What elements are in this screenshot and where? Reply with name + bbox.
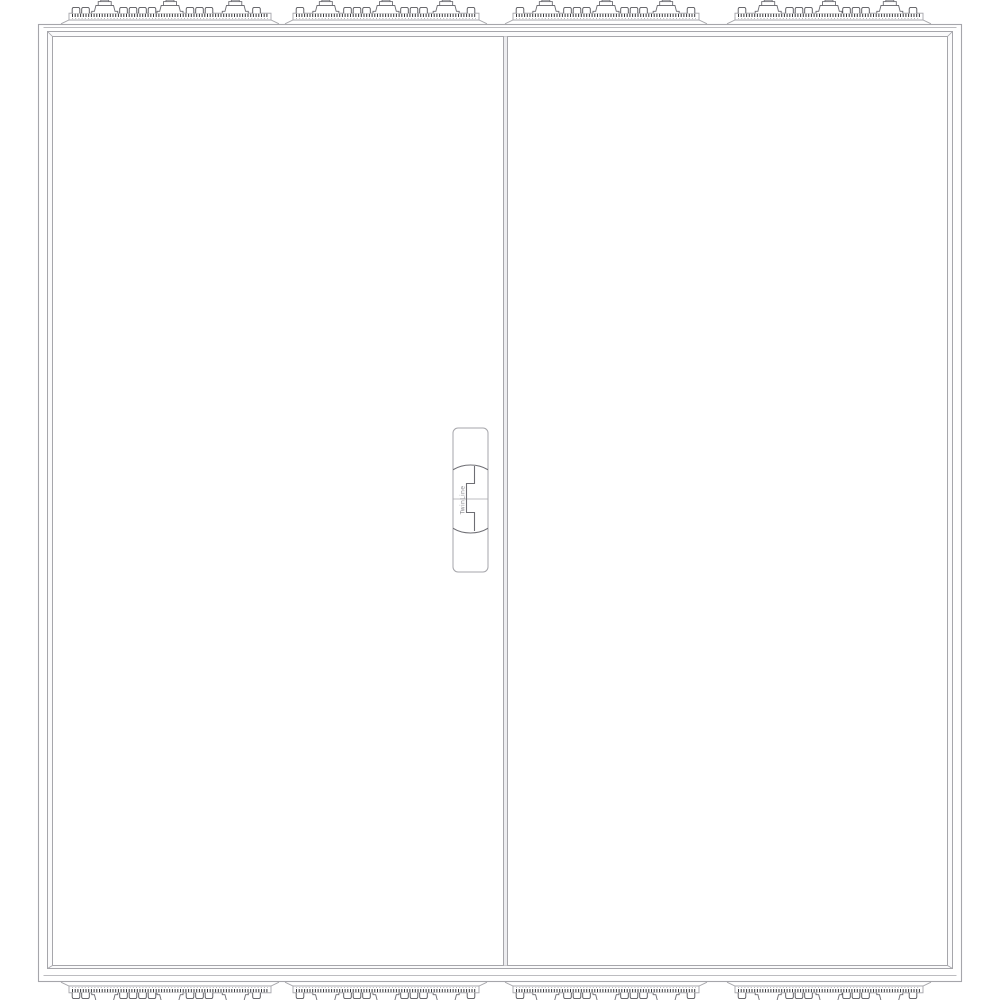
small-cable-knob <box>630 993 638 999</box>
flange-base-skirt <box>61 982 279 986</box>
small-cable-knob <box>129 993 137 999</box>
large-cable-grommet <box>313 993 339 1000</box>
small-cable-knob <box>516 7 524 13</box>
small-cable-knob <box>120 993 128 999</box>
flange-base-skirt <box>285 20 487 24</box>
center-seam <box>504 37 508 966</box>
small-cable-knob <box>564 993 572 999</box>
large-cable-grommet <box>373 0 399 13</box>
large-cable-grommet <box>653 993 679 1000</box>
large-cable-grommet <box>157 993 183 1000</box>
small-cable-knob <box>516 993 524 999</box>
large-cable-grommet <box>755 993 781 1000</box>
large-cable-grommet <box>593 0 619 13</box>
large-cable-grommet <box>533 993 559 1000</box>
flange-strip-bottom-4 <box>727 982 931 1000</box>
large-cable-grommet <box>653 0 679 13</box>
small-cable-knob <box>148 7 156 13</box>
large-cable-grommet <box>816 0 842 13</box>
large-cable-grommet <box>433 993 459 1000</box>
flange-base-skirt <box>285 982 487 986</box>
small-cable-knob <box>344 7 352 13</box>
small-cable-knob <box>573 7 581 13</box>
small-cable-knob <box>296 7 304 13</box>
small-cable-knob <box>640 993 648 999</box>
large-cable-grommet <box>313 0 339 13</box>
flange-strip-top-1 <box>61 0 279 24</box>
flange-strips-top <box>61 0 931 24</box>
small-cable-knob <box>196 7 204 13</box>
small-cable-knob <box>120 7 128 13</box>
small-cable-knob <box>852 993 860 999</box>
small-cable-knob <box>630 7 638 13</box>
small-cable-knob <box>843 993 851 999</box>
door-left <box>53 37 504 966</box>
large-cable-grommet <box>222 0 248 13</box>
small-cable-knob <box>786 993 794 999</box>
small-cable-knob <box>862 993 870 999</box>
handle-pill <box>453 428 488 572</box>
flange-strip-top-4 <box>727 0 931 24</box>
small-cable-knob <box>583 7 591 13</box>
small-cable-knob <box>205 993 213 999</box>
small-cable-knob <box>205 7 213 13</box>
small-cable-knob <box>296 993 304 999</box>
small-cable-knob <box>129 7 137 13</box>
small-cable-knob <box>139 993 147 999</box>
small-cable-knob <box>353 993 361 999</box>
small-cable-knob <box>363 993 371 999</box>
flange-base-skirt <box>505 982 707 986</box>
small-cable-knob <box>738 7 746 13</box>
large-cable-grommet <box>877 0 903 13</box>
small-cable-knob <box>687 993 695 999</box>
small-cable-knob <box>843 7 851 13</box>
flange-base-skirt <box>61 20 279 24</box>
enclosure-technical-drawing: TwinLine <box>0 0 1000 1000</box>
small-cable-knob <box>805 993 813 999</box>
flange-strip-bottom-1 <box>61 982 279 1000</box>
small-cable-knob <box>72 7 80 13</box>
large-cable-grommet <box>92 993 118 1000</box>
flange-base-skirt <box>727 20 931 24</box>
small-cable-knob <box>420 993 428 999</box>
small-cable-knob <box>410 7 418 13</box>
flange-base-skirt <box>505 20 707 24</box>
large-cable-grommet <box>433 0 459 13</box>
small-cable-knob <box>687 7 695 13</box>
large-cable-grommet <box>755 0 781 13</box>
large-cable-grommet <box>816 993 842 1000</box>
small-cable-knob <box>862 7 870 13</box>
large-cable-grommet <box>533 0 559 13</box>
small-cable-knob <box>852 7 860 13</box>
small-cable-knob <box>253 993 261 999</box>
small-cable-knob <box>467 993 475 999</box>
small-cable-knob <box>467 7 475 13</box>
enclosure-drawing-svg: TwinLine <box>0 0 1000 1000</box>
small-cable-knob <box>573 993 581 999</box>
flange-strip-bottom-3 <box>505 982 707 1000</box>
flange-strip-top-3 <box>505 0 707 24</box>
small-cable-knob <box>186 993 194 999</box>
small-cable-knob <box>583 993 591 999</box>
handle-brand-label: TwinLine <box>460 486 467 516</box>
large-cable-grommet <box>157 0 183 13</box>
small-cable-knob <box>186 7 194 13</box>
small-cable-knob <box>738 993 746 999</box>
small-cable-knob <box>410 993 418 999</box>
small-cable-knob <box>909 7 917 13</box>
doors <box>53 37 948 966</box>
small-cable-knob <box>253 7 261 13</box>
small-cable-knob <box>401 993 409 999</box>
small-cable-knob <box>795 993 803 999</box>
small-cable-knob <box>621 7 629 13</box>
small-cable-knob <box>401 7 409 13</box>
small-cable-knob <box>621 993 629 999</box>
small-cable-knob <box>795 7 803 13</box>
small-cable-knob <box>196 993 204 999</box>
small-cable-knob <box>72 993 80 999</box>
flange-strip-bottom-2 <box>285 982 487 1000</box>
door-right <box>508 37 948 966</box>
small-cable-knob <box>786 7 794 13</box>
flange-base-skirt <box>727 982 931 986</box>
small-cable-knob <box>363 7 371 13</box>
large-cable-grommet <box>593 993 619 1000</box>
small-cable-knob <box>640 7 648 13</box>
small-cable-knob <box>82 993 90 999</box>
large-cable-grommet <box>222 993 248 1000</box>
small-cable-knob <box>353 7 361 13</box>
small-cable-knob <box>82 7 90 13</box>
small-cable-knob <box>139 7 147 13</box>
large-cable-grommet <box>373 993 399 1000</box>
small-cable-knob <box>909 993 917 999</box>
small-cable-knob <box>344 993 352 999</box>
flange-strip-top-2 <box>285 0 487 24</box>
large-cable-grommet <box>92 0 118 13</box>
small-cable-knob <box>805 7 813 13</box>
small-cable-knob <box>148 993 156 999</box>
small-cable-knob <box>420 7 428 13</box>
flange-strips-bottom <box>61 982 931 1000</box>
small-cable-knob <box>564 7 572 13</box>
large-cable-grommet <box>877 993 903 1000</box>
